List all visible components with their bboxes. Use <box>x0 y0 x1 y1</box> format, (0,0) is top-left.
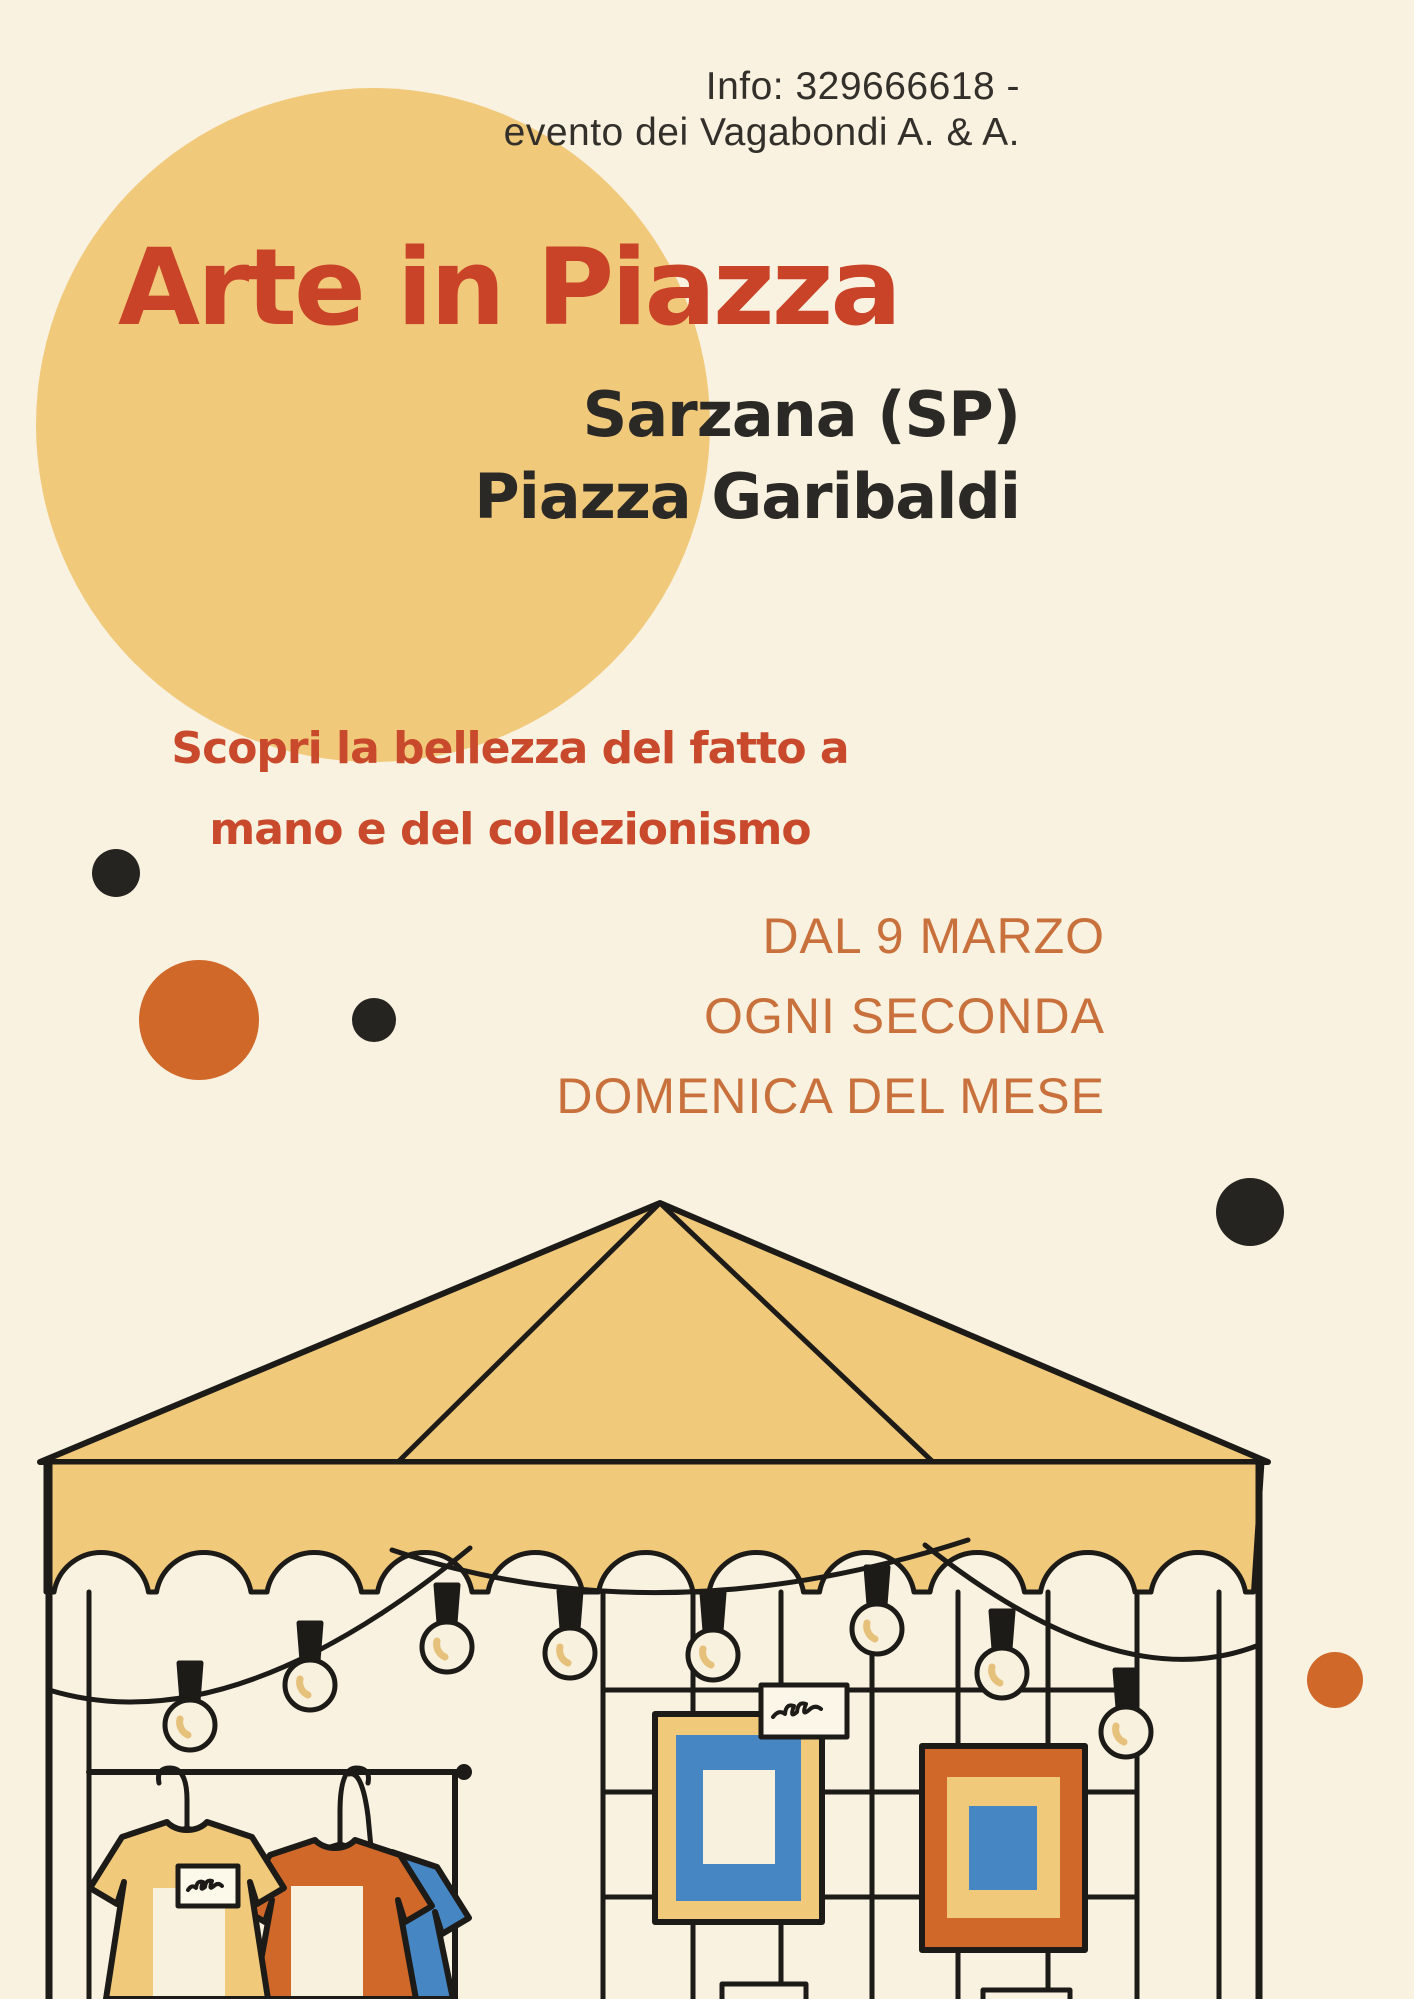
tagline-line1: Scopri la bellezza del fatto a <box>160 708 860 789</box>
price-sign-icon <box>761 1685 847 1737</box>
schedule-line2: OGNI SECONDA <box>405 976 1105 1056</box>
contact-info: Info: 329666618 - evento dei Vagabondi A… <box>400 64 1020 155</box>
contact-info-line2: evento dei Vagabondi A. & A. <box>400 110 1020 156</box>
contact-info-line1: Info: 329666618 - <box>400 64 1020 110</box>
tshirt-icon <box>90 1822 469 1999</box>
event-location: Sarzana (SP) Piazza Garibaldi <box>380 374 1020 539</box>
market-tent-icon <box>40 1203 1268 1462</box>
event-tagline: Scopri la bellezza del fatto a mano e de… <box>160 708 860 871</box>
schedule-line1: DAL 9 MARZO <box>405 896 1105 976</box>
dot-icon <box>352 998 396 1042</box>
picture-frame-icon <box>655 1714 822 1922</box>
tagline-line2: mano e del collezionismo <box>160 789 860 870</box>
location-city: Sarzana (SP) <box>380 374 1020 456</box>
shirt-label-icon <box>178 1866 238 1906</box>
scalloped-valance-icon <box>46 1462 1262 1592</box>
bottom-partial-shapes <box>722 1984 1070 1999</box>
poster-title: Arte in Piazza <box>118 226 1038 349</box>
dot-icon <box>139 960 259 1080</box>
dot-icon <box>92 849 140 897</box>
market-stall-illustration <box>0 1150 1414 1999</box>
string-lights-icon <box>49 1540 1259 1702</box>
location-square: Piazza Garibaldi <box>380 456 1020 538</box>
event-poster: Info: 329666618 - evento dei Vagabondi A… <box>0 0 1414 1999</box>
picture-frame-icon <box>922 1746 1085 1950</box>
schedule-line3: DOMENICA DEL MESE <box>405 1056 1105 1136</box>
event-schedule: DAL 9 MARZO OGNI SECONDA DOMENICA DEL ME… <box>405 896 1105 1136</box>
